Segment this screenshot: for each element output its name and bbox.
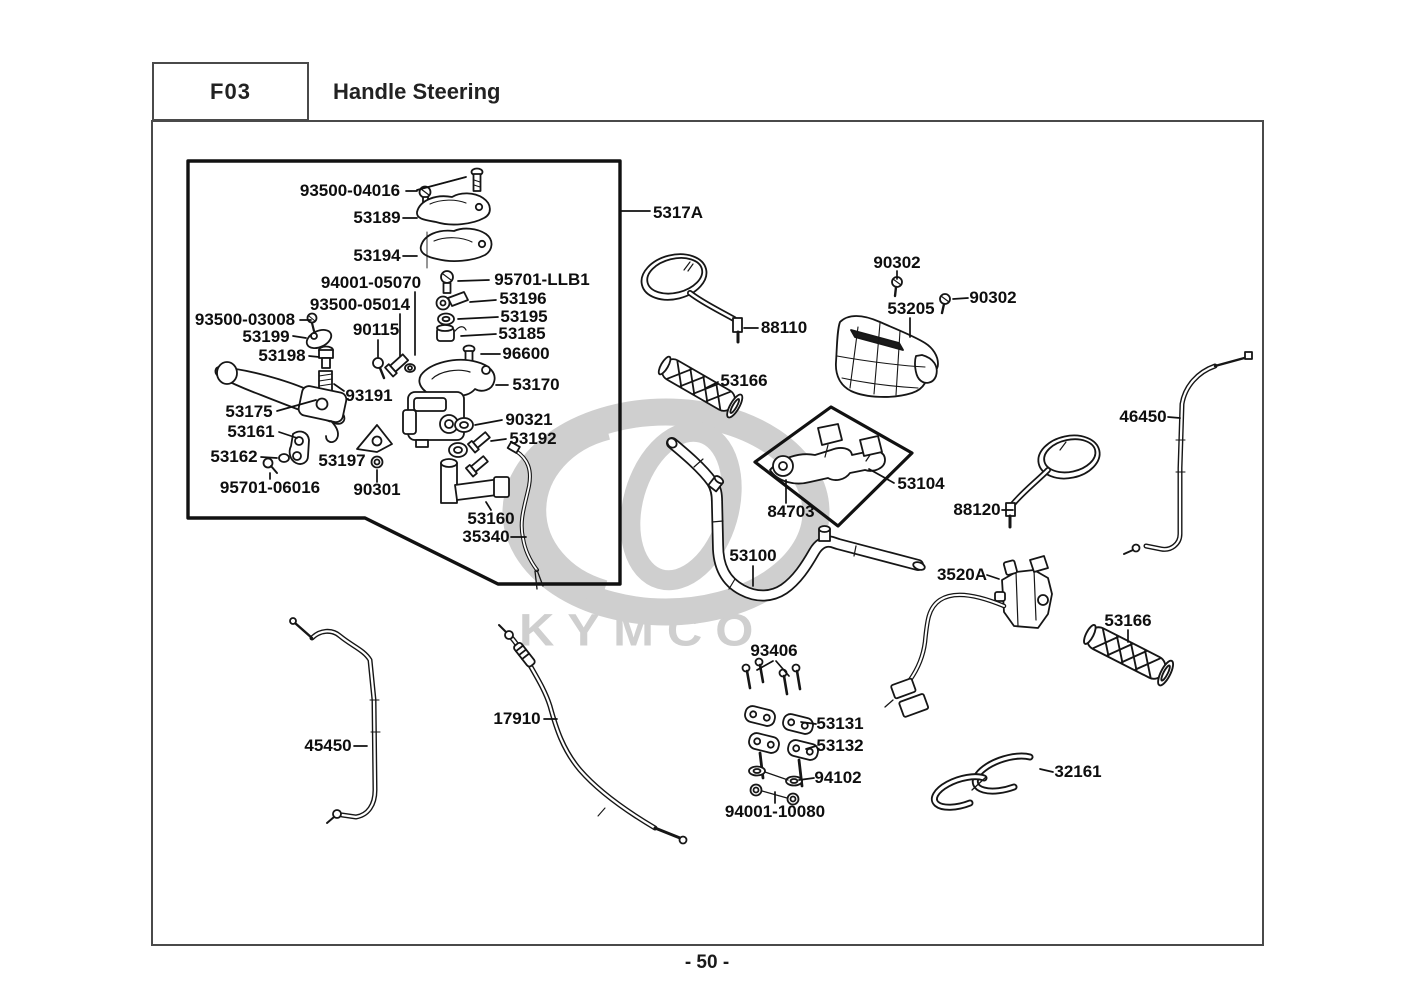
part-label-p53185: 53185: [498, 324, 545, 344]
part-label-p96600: 96600: [502, 344, 549, 364]
page: KYMCO: [0, 0, 1415, 1000]
part-label-p93500-04016: 93500-04016: [300, 181, 400, 201]
part-label-p17910: 17910: [493, 709, 540, 729]
part-label-p53205: 53205: [887, 299, 934, 319]
part-label-p94001-10080: 94001-10080: [725, 802, 825, 822]
part-label-p46450: 46450: [1119, 407, 1166, 427]
part-label-p53189: 53189: [353, 208, 400, 228]
part-label-p93406: 93406: [750, 641, 797, 661]
part-label-p88120: 88120: [953, 500, 1000, 520]
part-label-p35340: 35340: [462, 527, 509, 547]
part-label-p53100: 53100: [729, 546, 776, 566]
part-label-p5317A: 5317A: [653, 203, 703, 223]
part-label-p3520A: 3520A: [937, 565, 987, 585]
part-label-p45450: 45450: [304, 736, 351, 756]
part-label-p53166-right: 53166: [1104, 611, 1151, 631]
part-label-p94102: 94102: [814, 768, 861, 788]
part-label-p95701-06016: 95701-06016: [220, 478, 320, 498]
part-label-p93500-05014: 93500-05014: [310, 295, 410, 315]
part-label-p53131: 53131: [816, 714, 863, 734]
part-label-p95701-LLB1: 95701-LLB1: [494, 270, 589, 290]
part-label-p32161: 32161: [1054, 762, 1101, 782]
part-label-p53199: 53199: [242, 327, 289, 347]
part-labels-layer: 93500-04016531895319494001-0507095701-LL…: [0, 0, 1415, 1000]
part-label-p90302-right: 90302: [969, 288, 1016, 308]
part-label-p90115: 90115: [353, 320, 399, 340]
part-label-p84703: 84703: [767, 502, 814, 522]
part-label-p53166-left: 53166: [720, 371, 767, 391]
part-label-p53162: 53162: [210, 447, 257, 467]
part-label-p53197: 53197: [318, 451, 365, 471]
part-label-p53194: 53194: [353, 246, 400, 266]
part-label-p90301: 90301: [353, 480, 400, 500]
part-label-p90302-top: 90302: [873, 253, 920, 273]
part-label-p53170: 53170: [512, 375, 559, 395]
part-label-p53132: 53132: [816, 736, 863, 756]
part-label-p94001-05070: 94001-05070: [321, 273, 421, 293]
part-label-p53175: 53175: [225, 402, 272, 422]
part-label-p53192: 53192: [509, 429, 556, 449]
part-label-p53104: 53104: [897, 474, 944, 494]
part-label-p93191: 93191: [345, 386, 392, 406]
part-label-p88110: 88110: [761, 318, 807, 338]
part-label-p53198: 53198: [258, 346, 305, 366]
part-label-p53161: 53161: [227, 422, 274, 442]
part-label-p53196: 53196: [499, 289, 546, 309]
part-label-p90321: 90321: [505, 410, 552, 430]
part-label-p53160: 53160: [467, 509, 514, 529]
